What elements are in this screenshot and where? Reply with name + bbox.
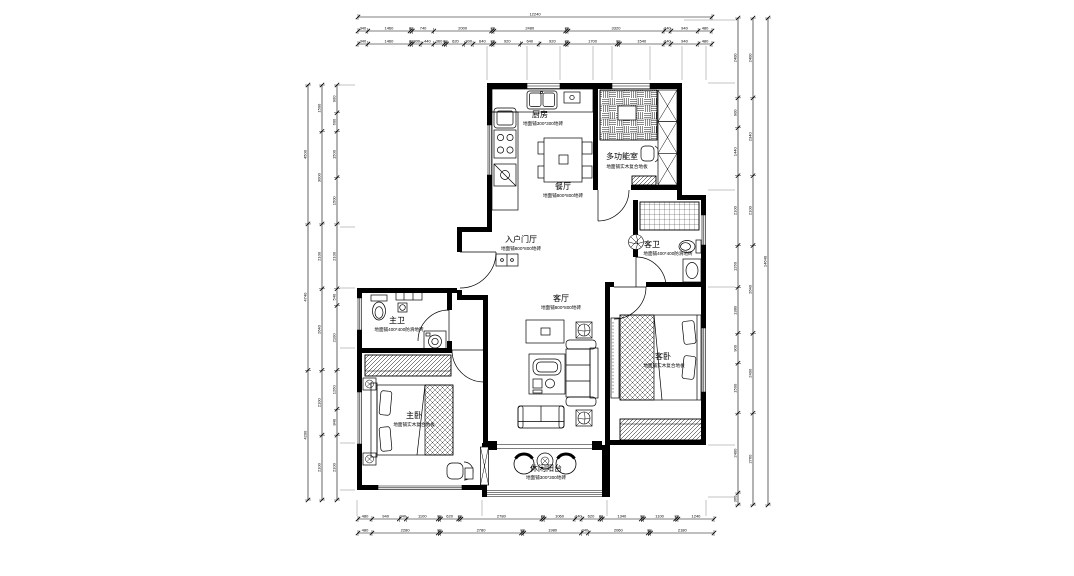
pillow xyxy=(379,391,392,416)
svg-text:1240: 1240 xyxy=(692,513,702,518)
loveseat xyxy=(518,406,564,428)
svg-text:80: 80 xyxy=(640,513,645,518)
svg-text:940: 940 xyxy=(681,25,688,30)
room-label-kitchen: 厨房 xyxy=(532,109,548,119)
stove-icon xyxy=(494,130,516,158)
svg-text:2100: 2100 xyxy=(316,251,321,261)
headboard xyxy=(371,383,377,457)
svg-text:480: 480 xyxy=(702,25,709,30)
svg-text:1380: 1380 xyxy=(732,305,737,315)
shower-area xyxy=(640,202,699,230)
svg-text:80: 80 xyxy=(541,513,546,518)
nightstand xyxy=(363,378,376,390)
svg-text:1700: 1700 xyxy=(588,38,598,43)
svg-text:80: 80 xyxy=(647,527,652,532)
svg-text:340: 340 xyxy=(360,25,367,30)
dining-chair xyxy=(582,142,592,154)
plant-icon xyxy=(576,322,592,338)
entry-door xyxy=(460,252,496,288)
svg-text:300: 300 xyxy=(413,38,420,43)
room-label-balcony: 休闲阳台 xyxy=(530,463,562,473)
svg-text:80: 80 xyxy=(565,25,570,30)
floor-plan-svg: 厨房 地面铺300*300地砖 多功能室 地面铺实木复合地板 餐厅 地面铺800… xyxy=(0,0,1074,576)
dimension-row-top: 3401460807402000802480803320240940480 xyxy=(356,25,714,34)
svg-text:900: 900 xyxy=(331,95,336,102)
room-label-entry: 入户门厅 xyxy=(505,234,537,244)
svg-text:740: 740 xyxy=(420,25,427,30)
svg-text:920: 920 xyxy=(549,38,556,43)
svg-text:1460: 1460 xyxy=(384,25,394,30)
bathroom-sink-icon xyxy=(683,259,701,282)
nightstand xyxy=(363,453,376,465)
svg-text:360: 360 xyxy=(436,38,443,43)
shoe-cabinet xyxy=(632,176,656,185)
multi-room-door xyxy=(598,190,629,221)
chair-icon xyxy=(447,462,473,480)
coffee-table xyxy=(529,354,565,394)
svg-text:900: 900 xyxy=(732,109,737,116)
svg-text:1100: 1100 xyxy=(655,513,664,518)
floor-plan-canvas: 厨房 地面铺300*300地砖 多功能室 地面铺实木复合地板 餐厅 地面铺800… xyxy=(0,0,1074,576)
svg-text:80: 80 xyxy=(491,25,496,30)
wardrobe xyxy=(658,90,677,185)
svg-text:640: 640 xyxy=(479,38,486,43)
svg-text:2100: 2100 xyxy=(747,205,752,215)
svg-text:1980: 1980 xyxy=(548,527,558,532)
floor-drain-icon xyxy=(398,303,407,312)
room-note-master-bed: 地面铺实木复合地板 xyxy=(393,421,435,428)
dimension-row-right: 14640 xyxy=(762,16,771,507)
pillow xyxy=(379,427,392,452)
svg-text:940: 940 xyxy=(681,38,688,43)
dimension-row-right: 2400900144021001260138090015002400360 xyxy=(732,16,741,507)
svg-text:640: 640 xyxy=(526,38,533,43)
svg-text:2100: 2100 xyxy=(331,333,336,343)
dimension-row-left: 900600150015002100540210012608402100 xyxy=(331,83,340,502)
svg-text:1500: 1500 xyxy=(732,383,737,393)
svg-text:2100: 2100 xyxy=(331,251,336,261)
svg-text:1500: 1500 xyxy=(331,149,336,159)
svg-text:620: 620 xyxy=(446,513,453,518)
range-hood-icon xyxy=(494,108,516,128)
svg-text:2340: 2340 xyxy=(747,132,752,142)
svg-text:620: 620 xyxy=(588,513,595,518)
svg-text:480: 480 xyxy=(362,513,369,518)
svg-text:440: 440 xyxy=(424,38,431,43)
guest-bedroom-furniture xyxy=(611,315,702,440)
svg-text:480: 480 xyxy=(362,527,369,532)
room-label-master-bed: 主卧 xyxy=(406,410,422,420)
svg-text:2400: 2400 xyxy=(747,368,752,378)
svg-text:2480: 2480 xyxy=(525,25,535,30)
svg-text:240: 240 xyxy=(664,25,671,30)
svg-text:2100: 2100 xyxy=(316,462,321,472)
room-note-living: 地面铺800*800地砖 xyxy=(541,304,581,311)
svg-text:1540: 1540 xyxy=(637,38,647,43)
bed xyxy=(371,383,453,457)
svg-text:2180: 2180 xyxy=(678,527,688,532)
svg-text:2100: 2100 xyxy=(732,205,737,215)
sofa xyxy=(566,340,598,406)
room-note-multi: 地面铺实木复合地板 xyxy=(606,163,648,170)
svg-text:4500: 4500 xyxy=(302,149,307,159)
svg-text:240: 240 xyxy=(582,527,589,532)
svg-text:2280: 2280 xyxy=(401,527,411,532)
svg-text:480: 480 xyxy=(702,38,709,43)
room-label-master-bath: 主卫 xyxy=(389,315,405,325)
svg-text:300: 300 xyxy=(465,38,472,43)
svg-text:840: 840 xyxy=(331,418,336,425)
tv-cabinet xyxy=(526,320,564,343)
room-label-guest-bed: 客卧 xyxy=(655,351,671,361)
svg-text:80: 80 xyxy=(520,527,525,532)
room-note-dining: 地面铺800*800地砖 xyxy=(543,192,583,199)
svg-text:3000: 3000 xyxy=(316,172,321,182)
small-appliance-icon xyxy=(564,92,580,103)
svg-text:1340: 1340 xyxy=(617,513,627,518)
kitchen-cabinet-icon xyxy=(494,164,516,186)
guest-bedroom-door xyxy=(614,287,646,319)
svg-text:240: 240 xyxy=(399,513,406,518)
dimension-row-top: 12240 xyxy=(356,11,714,20)
tv-icon xyxy=(541,328,550,335)
master-bath-door xyxy=(418,310,449,341)
svg-text:240: 240 xyxy=(575,513,582,518)
svg-text:2400: 2400 xyxy=(747,53,752,63)
svg-text:80: 80 xyxy=(458,513,463,518)
room-label-multi: 多功能室 xyxy=(606,151,638,161)
balcony-column-brace xyxy=(481,447,489,485)
room-note-guest-bath: 地面铺400*400防滑地砖 xyxy=(643,250,693,257)
room-label-living: 客厅 xyxy=(553,293,569,303)
room-label-dining: 餐厅 xyxy=(555,182,571,191)
svg-text:340: 340 xyxy=(360,38,367,43)
svg-text:2000: 2000 xyxy=(458,25,468,30)
svg-text:900: 900 xyxy=(732,344,737,351)
svg-text:940: 940 xyxy=(382,513,389,518)
svg-text:2400: 2400 xyxy=(732,448,737,458)
living-furniture xyxy=(518,320,598,428)
sink-icon xyxy=(527,91,557,109)
svg-text:80: 80 xyxy=(437,513,442,518)
dimension-row-bottom: 48022808027808019802402060802180 xyxy=(356,527,716,536)
svg-text:80: 80 xyxy=(491,38,496,43)
svg-text:14640: 14640 xyxy=(762,255,767,267)
svg-text:1460: 1460 xyxy=(384,38,394,43)
svg-text:1500: 1500 xyxy=(331,196,336,206)
svg-text:80: 80 xyxy=(409,25,414,30)
room-note-kitchen: 地面铺300*300地砖 xyxy=(523,120,563,127)
svg-text:920: 920 xyxy=(504,38,511,43)
wardrobe xyxy=(365,355,451,376)
svg-text:1260: 1260 xyxy=(732,261,737,271)
svg-text:80: 80 xyxy=(437,527,442,532)
multi-room-furniture xyxy=(600,90,677,185)
svg-text:540: 540 xyxy=(331,293,336,300)
svg-text:620: 620 xyxy=(452,38,459,43)
room-note-balcony: 地面铺300*300地砖 xyxy=(526,474,566,481)
svg-text:80: 80 xyxy=(443,38,448,43)
room-note-entry: 地面铺800*800地砖 xyxy=(501,245,541,252)
svg-text:4740: 4740 xyxy=(302,292,307,302)
svg-text:2640: 2640 xyxy=(316,324,321,334)
svg-text:1500: 1500 xyxy=(316,103,321,113)
svg-text:80: 80 xyxy=(616,38,621,43)
toilet-icon xyxy=(371,295,387,320)
entry-fixtures xyxy=(496,254,518,266)
pillow xyxy=(682,320,696,344)
dimension-row-top: 3401460803004403608062030064080920640920… xyxy=(356,38,714,47)
svg-text:4200: 4200 xyxy=(302,430,307,440)
plant-icon xyxy=(629,235,644,250)
room-note-master-bath: 地面铺400*400防滑地砖 xyxy=(374,326,424,333)
svg-text:80: 80 xyxy=(565,38,570,43)
guest-bath-fixtures xyxy=(629,202,702,282)
entry-cabinet xyxy=(496,254,518,266)
svg-text:12240: 12240 xyxy=(529,11,541,16)
tatami-table xyxy=(618,106,636,120)
dimension-row-left: 450047404200 xyxy=(302,83,311,502)
svg-text:2100: 2100 xyxy=(331,462,336,472)
svg-text:80: 80 xyxy=(675,513,680,518)
svg-text:80: 80 xyxy=(599,513,604,518)
wardrobe xyxy=(620,419,702,440)
dining-chair xyxy=(582,166,592,178)
room-label-guest-bath: 客卫 xyxy=(644,239,660,249)
svg-text:3320: 3320 xyxy=(612,25,622,30)
dining-set xyxy=(538,138,592,182)
bedside-bench xyxy=(611,318,619,398)
svg-text:2060: 2060 xyxy=(614,527,624,532)
dimension-row-left: 150030002100264021002100 xyxy=(316,83,325,502)
dining-table-center xyxy=(559,155,568,164)
svg-text:2760: 2760 xyxy=(747,454,752,464)
svg-text:2100: 2100 xyxy=(316,398,321,408)
svg-text:240: 240 xyxy=(664,38,671,43)
master-bath-fixtures xyxy=(371,291,446,351)
dimension-row-bottom: 4809402401100806208027808010602406208013… xyxy=(356,513,716,522)
room-note-guest-bed: 地面铺实木复合地板 xyxy=(643,362,685,369)
plant-icon xyxy=(576,410,592,426)
desk-chair-icon xyxy=(641,146,659,162)
svg-text:1260: 1260 xyxy=(331,385,336,395)
master-bedroom-door xyxy=(452,350,484,382)
svg-text:2780: 2780 xyxy=(497,513,507,518)
svg-text:360: 360 xyxy=(732,495,737,502)
svg-text:1100: 1100 xyxy=(418,513,427,518)
kitchen-counter-left xyxy=(492,112,518,210)
svg-text:1440: 1440 xyxy=(732,147,737,157)
svg-text:2780: 2780 xyxy=(477,527,487,532)
svg-text:600: 600 xyxy=(331,118,336,125)
dimension-row-right: 240023402100264024002760 xyxy=(747,16,756,507)
svg-text:2400: 2400 xyxy=(732,53,737,63)
svg-text:2640: 2640 xyxy=(747,284,752,294)
svg-text:1060: 1060 xyxy=(555,513,565,518)
